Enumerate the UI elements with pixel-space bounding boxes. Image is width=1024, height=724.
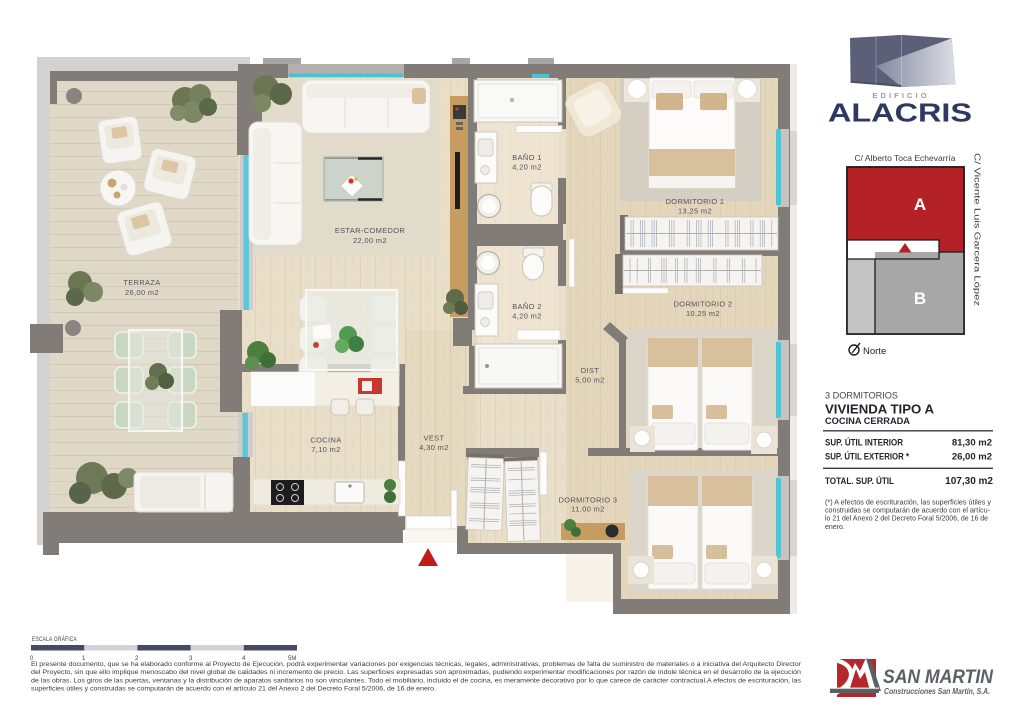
svg-text:Construcciones San Martín, S.A: Construcciones San Martín, S.A. <box>884 687 990 696</box>
svg-text:DORMITORIO 3: DORMITORIO 3 <box>559 496 618 505</box>
svg-text:107,30 m2: 107,30 m2 <box>945 476 993 487</box>
svg-text:SUP. ÚTIL EXTERIOR *: SUP. ÚTIL EXTERIOR * <box>825 451 909 462</box>
svg-text:del Proyecto, sin que ello imp: del Proyecto, sin que ello implique meno… <box>31 669 801 676</box>
svg-text:superficies útiles y construid: superficies útiles y construidas se comp… <box>31 686 436 693</box>
svg-text:SAN MARTIN: SAN MARTIN <box>883 667 994 688</box>
svg-text:4,30 m2: 4,30 m2 <box>419 443 449 452</box>
svg-text:3 DORMITORIOS: 3 DORMITORIOS <box>825 391 898 401</box>
svg-text:4,20 m2: 4,20 m2 <box>512 163 542 172</box>
svg-text:TOTAL. SUP. ÚTIL: TOTAL. SUP. ÚTIL <box>825 475 894 487</box>
svg-text:4,20 m2: 4,20 m2 <box>512 312 542 321</box>
svg-text:enero.: enero. <box>825 524 845 531</box>
svg-text:DORMITORIO 2: DORMITORIO 2 <box>674 300 733 309</box>
svg-text:TERRAZA: TERRAZA <box>123 278 160 287</box>
svg-text:SUP. ÚTIL INTERIOR: SUP. ÚTIL INTERIOR <box>825 437 903 448</box>
svg-text:22,00 m2: 22,00 m2 <box>353 236 387 245</box>
svg-text:81,30 m2: 81,30 m2 <box>952 438 992 449</box>
svg-text:C/ Vicente Luis Garcera López: C/ Vicente Luis Garcera López <box>973 153 983 306</box>
svg-text:BAÑO 1: BAÑO 1 <box>512 153 542 162</box>
svg-text:COCINA CERRADA: COCINA CERRADA <box>825 416 911 426</box>
svg-text:BAÑO 2: BAÑO 2 <box>512 302 542 311</box>
svg-text:VIVIENDA TIPO A: VIVIENDA TIPO A <box>825 403 934 417</box>
svg-text:26,00 m2: 26,00 m2 <box>125 288 159 297</box>
svg-text:lo 21 del Anexo 2 del Decreto: lo 21 del Anexo 2 del Decreto Foral 5/20… <box>825 516 988 523</box>
svg-text:construidas se computarán de a: construidas se computarán de acuerdo con… <box>825 508 991 515</box>
svg-text:ESTAR-COMEDOR: ESTAR-COMEDOR <box>335 226 405 235</box>
svg-text:13,25 m2: 13,25 m2 <box>678 207 712 216</box>
svg-text:B: B <box>914 289 926 308</box>
svg-text:DIST: DIST <box>581 366 600 375</box>
svg-text:5,00 m2: 5,00 m2 <box>575 376 605 385</box>
svg-text:11,00 m2: 11,00 m2 <box>571 505 604 514</box>
svg-text:de las obras. Los giros de las: de las obras. Los giros de las puertas, … <box>31 677 802 684</box>
svg-text:COCINA: COCINA <box>310 436 341 445</box>
svg-text:DORMITORIO 1: DORMITORIO 1 <box>666 197 725 206</box>
svg-text:26,00 m2: 26,00 m2 <box>952 452 992 463</box>
svg-text:7,10 m2: 7,10 m2 <box>311 445 341 454</box>
svg-text:Norte: Norte <box>863 346 886 357</box>
svg-text:ALACRIS: ALACRIS <box>828 100 972 128</box>
svg-text:C/ Alberto Toca Echevarría: C/ Alberto Toca Echevarría <box>855 153 956 163</box>
svg-text:A: A <box>914 195 926 214</box>
svg-text:VEST: VEST <box>424 434 445 443</box>
svg-text:10,25 m2: 10,25 m2 <box>686 309 720 318</box>
svg-text:El presente documento, que se: El presente documento, que se ha elabora… <box>31 661 802 668</box>
svg-text:(*) A efectos de escrituración: (*) A efectos de escrituración, las supe… <box>825 500 992 507</box>
svg-text:ESCALA GRÁFICA: ESCALA GRÁFICA <box>32 636 77 643</box>
